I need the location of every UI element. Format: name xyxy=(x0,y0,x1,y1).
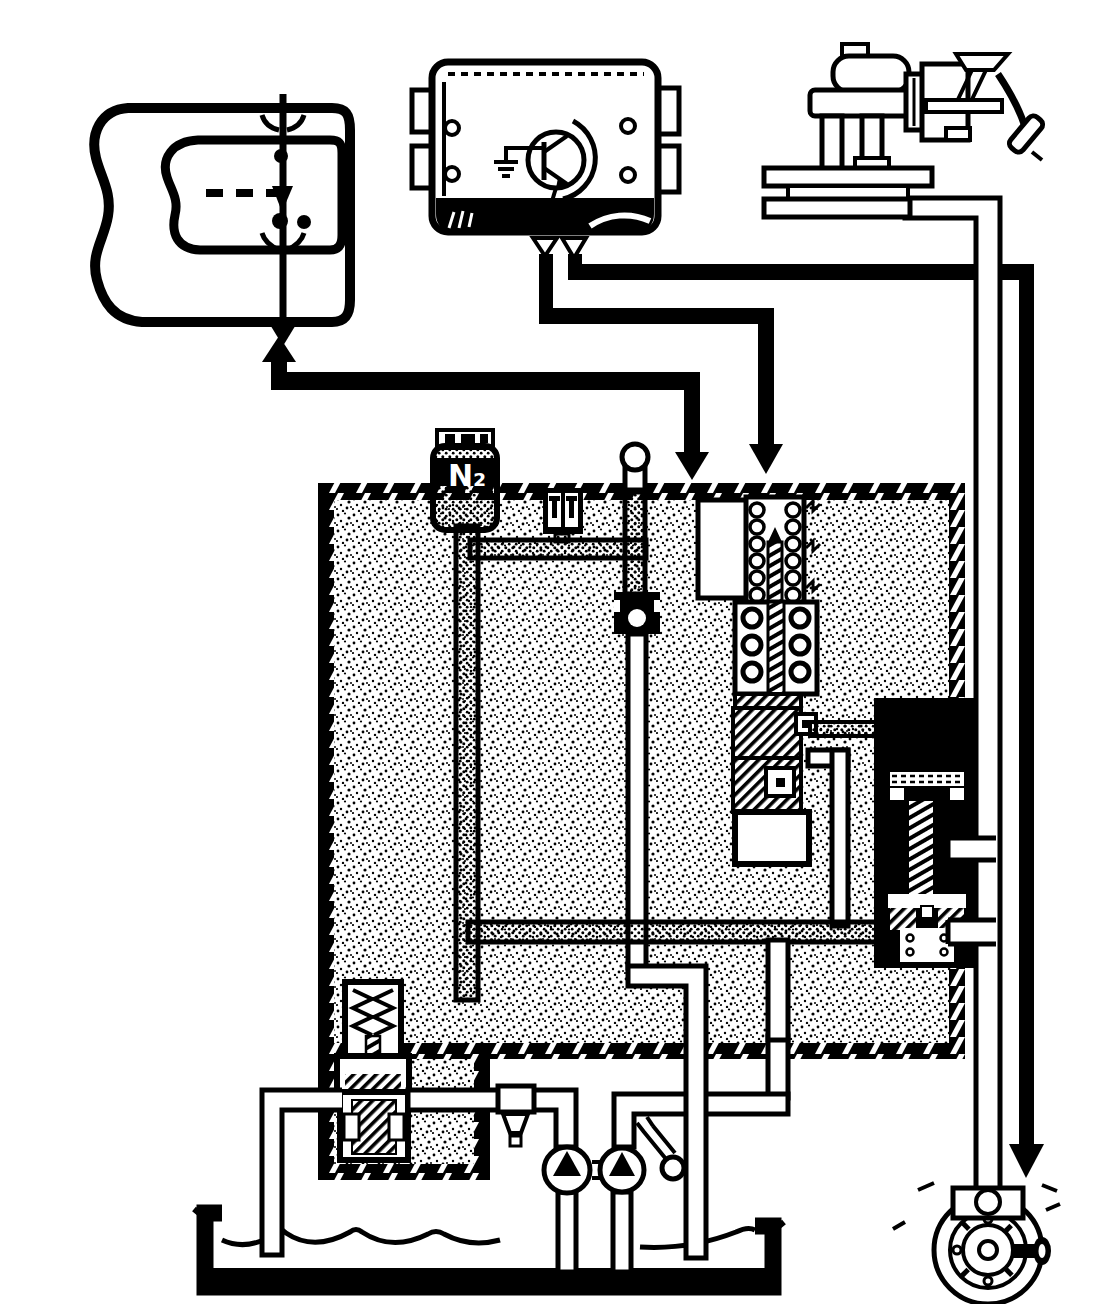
valve-land-2 xyxy=(733,708,801,758)
switch-t-right-stem xyxy=(569,496,574,518)
relief-ball xyxy=(622,444,648,470)
carburetor-throttle-assembly xyxy=(764,44,1045,217)
selector-wire-arrow xyxy=(675,452,709,480)
pedal-pad xyxy=(1007,114,1045,155)
servo-piston-chamber xyxy=(892,710,962,772)
pump2-riser xyxy=(768,1036,788,1098)
ecu-wire2-horizontal xyxy=(568,264,1034,280)
ecu-wire2-vertical xyxy=(1019,270,1034,1148)
gear-selector-panel xyxy=(94,94,350,346)
cap-tick xyxy=(480,434,488,443)
orifice-fitting xyxy=(498,1086,534,1112)
valve-window-pin xyxy=(776,778,785,787)
servo-piston xyxy=(890,772,964,786)
servo-tab-left xyxy=(890,788,904,800)
check-ball xyxy=(628,609,646,627)
valve-servo-signal-line xyxy=(810,722,882,736)
accelerator-pedal xyxy=(998,74,1045,160)
drive-eye xyxy=(662,1157,684,1179)
ecu-wire2-arrow xyxy=(1009,1144,1044,1178)
servo-wedge-left xyxy=(890,908,916,930)
solenoid-plunger xyxy=(768,542,782,608)
subbox-border-bottom xyxy=(318,1164,490,1180)
main-gallery-line xyxy=(468,922,904,942)
lever-pivot-1 xyxy=(274,149,288,163)
drain-line-upper xyxy=(628,634,646,968)
panel-inner-window xyxy=(165,140,342,250)
servo-rod xyxy=(908,800,934,896)
servo-branch-lower-core xyxy=(948,922,996,942)
box-border-left xyxy=(318,483,334,1180)
subbox-border-right xyxy=(474,1059,490,1180)
pan-bottom xyxy=(205,1268,773,1287)
shift-spool-valve xyxy=(733,602,817,864)
electronic-control-unit xyxy=(412,62,679,232)
carb-leg-left xyxy=(822,116,842,172)
valve-stem xyxy=(768,602,784,694)
carb-leg-right xyxy=(862,116,882,160)
manifold-plate-lower xyxy=(764,199,910,217)
wheel-hub xyxy=(979,1241,997,1259)
pump2-suction xyxy=(613,1192,631,1272)
ecu-connector-1 xyxy=(533,238,557,256)
pressure-switch xyxy=(543,488,583,542)
carb-foot xyxy=(946,128,970,140)
ecu-wire1-drop xyxy=(539,254,553,312)
lever-pivot-side xyxy=(297,215,311,229)
selector-wire-drop xyxy=(684,372,700,460)
lever-pivot-2 xyxy=(272,213,288,229)
valve-land-1 xyxy=(735,694,801,708)
regulator-notch-right xyxy=(389,1114,404,1140)
fluid-level-wave xyxy=(222,1228,755,1247)
ecu-wire1-drop2 xyxy=(758,308,774,448)
lever-arrow-bottom xyxy=(266,318,300,346)
hydraulic-unit-box: N₂ xyxy=(318,430,978,1180)
relief-line-upper xyxy=(625,490,645,594)
switch-t-left-stem xyxy=(552,496,557,518)
governor-ball xyxy=(976,1190,1000,1214)
valve-spring-chamber xyxy=(735,812,809,864)
check-notch-right xyxy=(654,600,660,612)
switch-stem xyxy=(555,534,569,542)
hydraulic-pump-1 xyxy=(544,1147,590,1272)
throttle-link-rod xyxy=(926,100,1002,112)
accumulator-gas-label: N₂ xyxy=(448,458,486,493)
drive-lever-lines xyxy=(637,1117,675,1159)
manifold-plate-upper xyxy=(764,168,932,186)
float-bowl xyxy=(833,56,909,92)
transistor-circle xyxy=(528,132,584,188)
ecu-wire1-horizontal xyxy=(539,308,774,324)
governor-arm-slot xyxy=(1039,1244,1046,1258)
governor-wheel xyxy=(893,1183,1060,1304)
nitrogen-accumulator: N₂ xyxy=(433,430,497,530)
servo-rod-end xyxy=(921,906,933,918)
air-horn-funnel xyxy=(956,54,1008,70)
valve-loop-line xyxy=(832,750,848,926)
cap-tick xyxy=(445,434,455,443)
shift-solenoid xyxy=(698,497,820,609)
regulator-land xyxy=(345,1074,401,1090)
cap-tick xyxy=(461,434,475,443)
servo-tab-right xyxy=(950,788,964,800)
drip-funnel xyxy=(503,1114,528,1133)
regulator-notch-left xyxy=(344,1114,359,1140)
pump1-suction xyxy=(558,1192,576,1272)
selector-wire-horizontal xyxy=(271,372,700,390)
box-border-bottom xyxy=(334,1043,965,1059)
servo-branch-upper-core xyxy=(948,840,996,858)
ecu-wire1-arrow xyxy=(749,444,783,474)
drip-droplet xyxy=(510,1136,521,1146)
hydraulic-pump-2 xyxy=(600,1148,644,1272)
pump2-riser-upper xyxy=(768,940,788,1040)
check-notch-left xyxy=(614,600,620,612)
pedal-tip xyxy=(1032,152,1042,160)
schematic: N₂ xyxy=(0,0,1120,1304)
pressure-regulator-valve xyxy=(337,982,409,1160)
selector-wire-arrow-up xyxy=(262,336,296,362)
diagram-canvas: N₂ xyxy=(0,0,1120,1304)
